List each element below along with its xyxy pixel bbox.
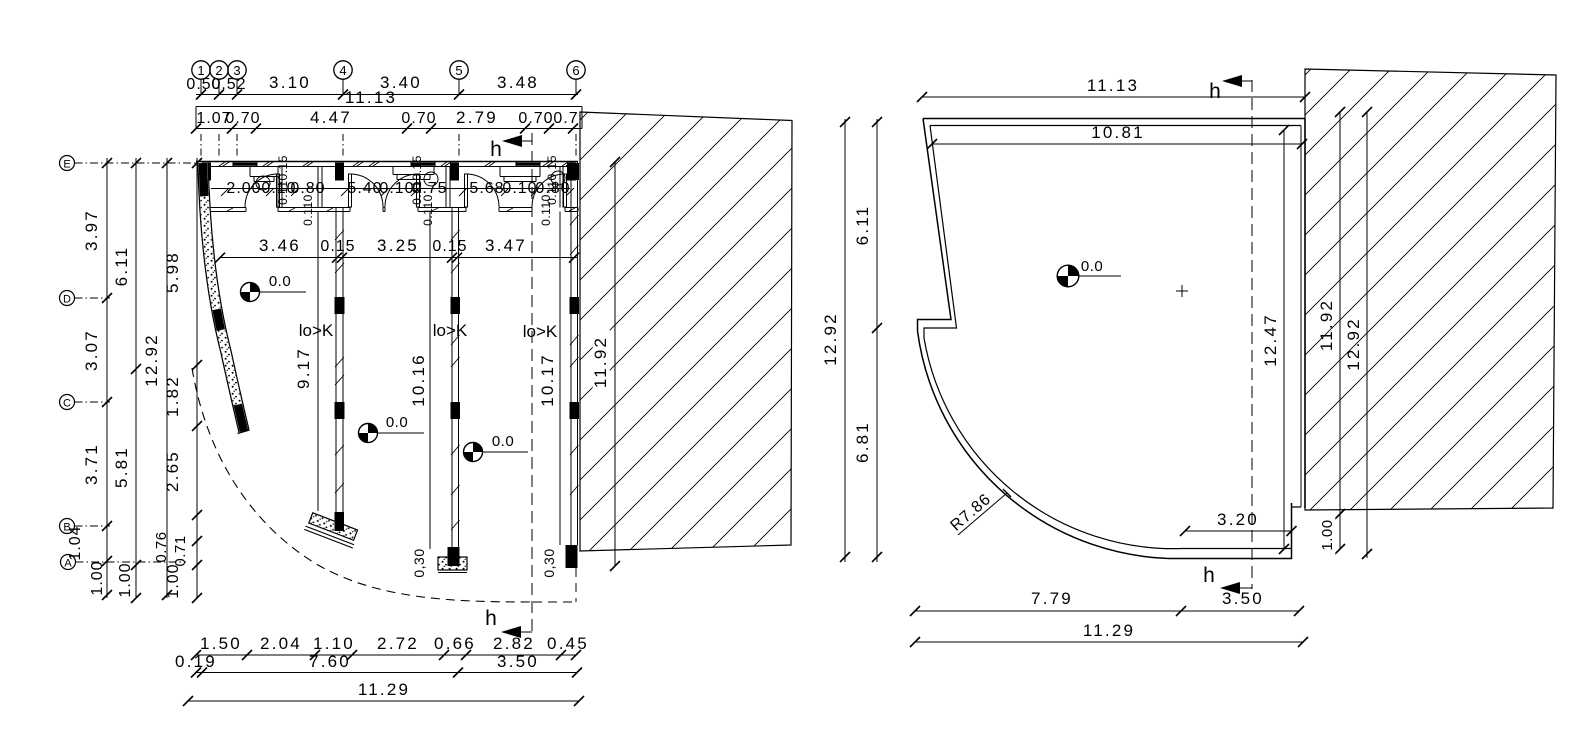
svg-text:6: 6 xyxy=(572,63,579,78)
svg-text:0.15: 0.15 xyxy=(432,238,467,255)
svg-text:11.92: 11.92 xyxy=(591,336,610,388)
svg-text:12.92: 12.92 xyxy=(821,312,840,366)
svg-text:11.29: 11.29 xyxy=(1083,621,1135,640)
svg-text:5.68: 5.68 xyxy=(469,180,504,197)
svg-text:3.50: 3.50 xyxy=(1222,589,1264,608)
svg-text:0.0: 0.0 xyxy=(492,433,514,450)
svg-text:6.11: 6.11 xyxy=(112,246,131,287)
svg-text:0.66: 0.66 xyxy=(434,634,476,653)
svg-text:0.45: 0.45 xyxy=(547,634,589,653)
svg-text:11.13: 11.13 xyxy=(345,88,397,107)
svg-text:3.25: 3.25 xyxy=(377,236,419,255)
svg-text:0,30: 0,30 xyxy=(541,548,557,577)
svg-text:1.10: 1.10 xyxy=(313,634,355,653)
svg-text:3.46: 3.46 xyxy=(259,236,301,255)
svg-text:3.07: 3.07 xyxy=(82,329,101,371)
svg-text:0.70: 0.70 xyxy=(225,110,260,127)
svg-text:11.92: 11.92 xyxy=(1317,299,1336,351)
svg-text:3.47: 3.47 xyxy=(485,236,527,255)
svg-text:C: C xyxy=(63,398,71,410)
svg-text:7.79: 7.79 xyxy=(1031,589,1073,608)
svg-text:0,30: 0,30 xyxy=(411,548,427,577)
svg-text:4: 4 xyxy=(339,63,346,78)
svg-text:9.17: 9.17 xyxy=(294,347,313,389)
svg-text:2.79: 2.79 xyxy=(456,108,498,127)
svg-text:11.29: 11.29 xyxy=(358,680,410,699)
svg-text:D: D xyxy=(63,294,71,306)
svg-text:h: h xyxy=(485,607,497,630)
svg-text:2.72: 2.72 xyxy=(377,634,419,653)
svg-text:3.97: 3.97 xyxy=(82,209,101,251)
svg-text:3.48: 3.48 xyxy=(497,73,539,92)
svg-text:11.13: 11.13 xyxy=(1087,76,1139,95)
svg-text:h: h xyxy=(1209,80,1221,103)
svg-text:0.110: 0.110 xyxy=(421,194,435,226)
svg-text:0.0: 0.0 xyxy=(386,414,408,431)
svg-text:3.10: 3.10 xyxy=(269,73,311,92)
svg-text:3.71: 3.71 xyxy=(82,443,101,485)
svg-text:0.0: 0.0 xyxy=(269,273,291,290)
svg-text:0.15: 0.15 xyxy=(320,238,355,255)
svg-text:12.92: 12.92 xyxy=(142,333,161,387)
svg-text:0.110: 0.110 xyxy=(539,194,553,226)
svg-text:E: E xyxy=(63,159,70,171)
svg-text:6.11: 6.11 xyxy=(853,205,872,246)
svg-text:2.65: 2.65 xyxy=(163,450,182,492)
svg-text:3.50: 3.50 xyxy=(497,652,539,671)
svg-text:6.81: 6.81 xyxy=(853,421,872,463)
svg-text:0.0: 0.0 xyxy=(1081,258,1103,275)
svg-text:h: h xyxy=(1203,564,1215,587)
svg-text:2.04: 2.04 xyxy=(260,634,302,653)
svg-text:10.16: 10.16 xyxy=(409,353,428,407)
svg-text:1.04: 1.04 xyxy=(67,525,84,560)
svg-text:10.81: 10.81 xyxy=(1091,123,1145,142)
svg-text:7.60: 7.60 xyxy=(309,652,351,671)
svg-text:1.50: 1.50 xyxy=(200,634,242,653)
svg-text:0.19: 0.19 xyxy=(175,652,217,671)
svg-text:5.40: 5.40 xyxy=(347,180,382,197)
svg-text:h: h xyxy=(490,138,502,161)
svg-text:lo>K: lo>K xyxy=(433,321,468,340)
svg-text:lo>K: lo>K xyxy=(299,321,334,340)
svg-text:5.81: 5.81 xyxy=(112,446,131,488)
svg-text:1.00: 1.00 xyxy=(1319,519,1336,550)
svg-text:5: 5 xyxy=(455,63,462,78)
svg-text:3.20: 3.20 xyxy=(1217,510,1259,529)
svg-text:12.92: 12.92 xyxy=(1344,317,1363,371)
svg-text:10.17: 10.17 xyxy=(538,353,557,407)
svg-text:0.110: 0.110 xyxy=(301,194,315,226)
svg-text:5.98: 5.98 xyxy=(163,251,182,293)
svg-text:1.82: 1.82 xyxy=(163,375,182,417)
svg-text:0.70: 0.70 xyxy=(518,110,553,127)
svg-text:0.70: 0.70 xyxy=(401,110,436,127)
svg-text:1.00: 1.00 xyxy=(89,560,106,595)
svg-text:0.52: 0.52 xyxy=(211,76,246,93)
svg-text:1.00: 1.00 xyxy=(165,563,182,598)
svg-text:0.71: 0.71 xyxy=(172,535,189,566)
svg-text:12.47: 12.47 xyxy=(1261,313,1280,367)
svg-text:1.00: 1.00 xyxy=(117,562,134,597)
svg-text:0.76: 0.76 xyxy=(153,531,170,562)
svg-text:lo>K: lo>K xyxy=(523,322,558,341)
svg-text:0.110.15: 0.110.15 xyxy=(276,155,290,205)
svg-text:2.82: 2.82 xyxy=(493,634,535,653)
svg-text:0.7: 0.7 xyxy=(553,110,578,127)
svg-text:4.47: 4.47 xyxy=(310,108,352,127)
